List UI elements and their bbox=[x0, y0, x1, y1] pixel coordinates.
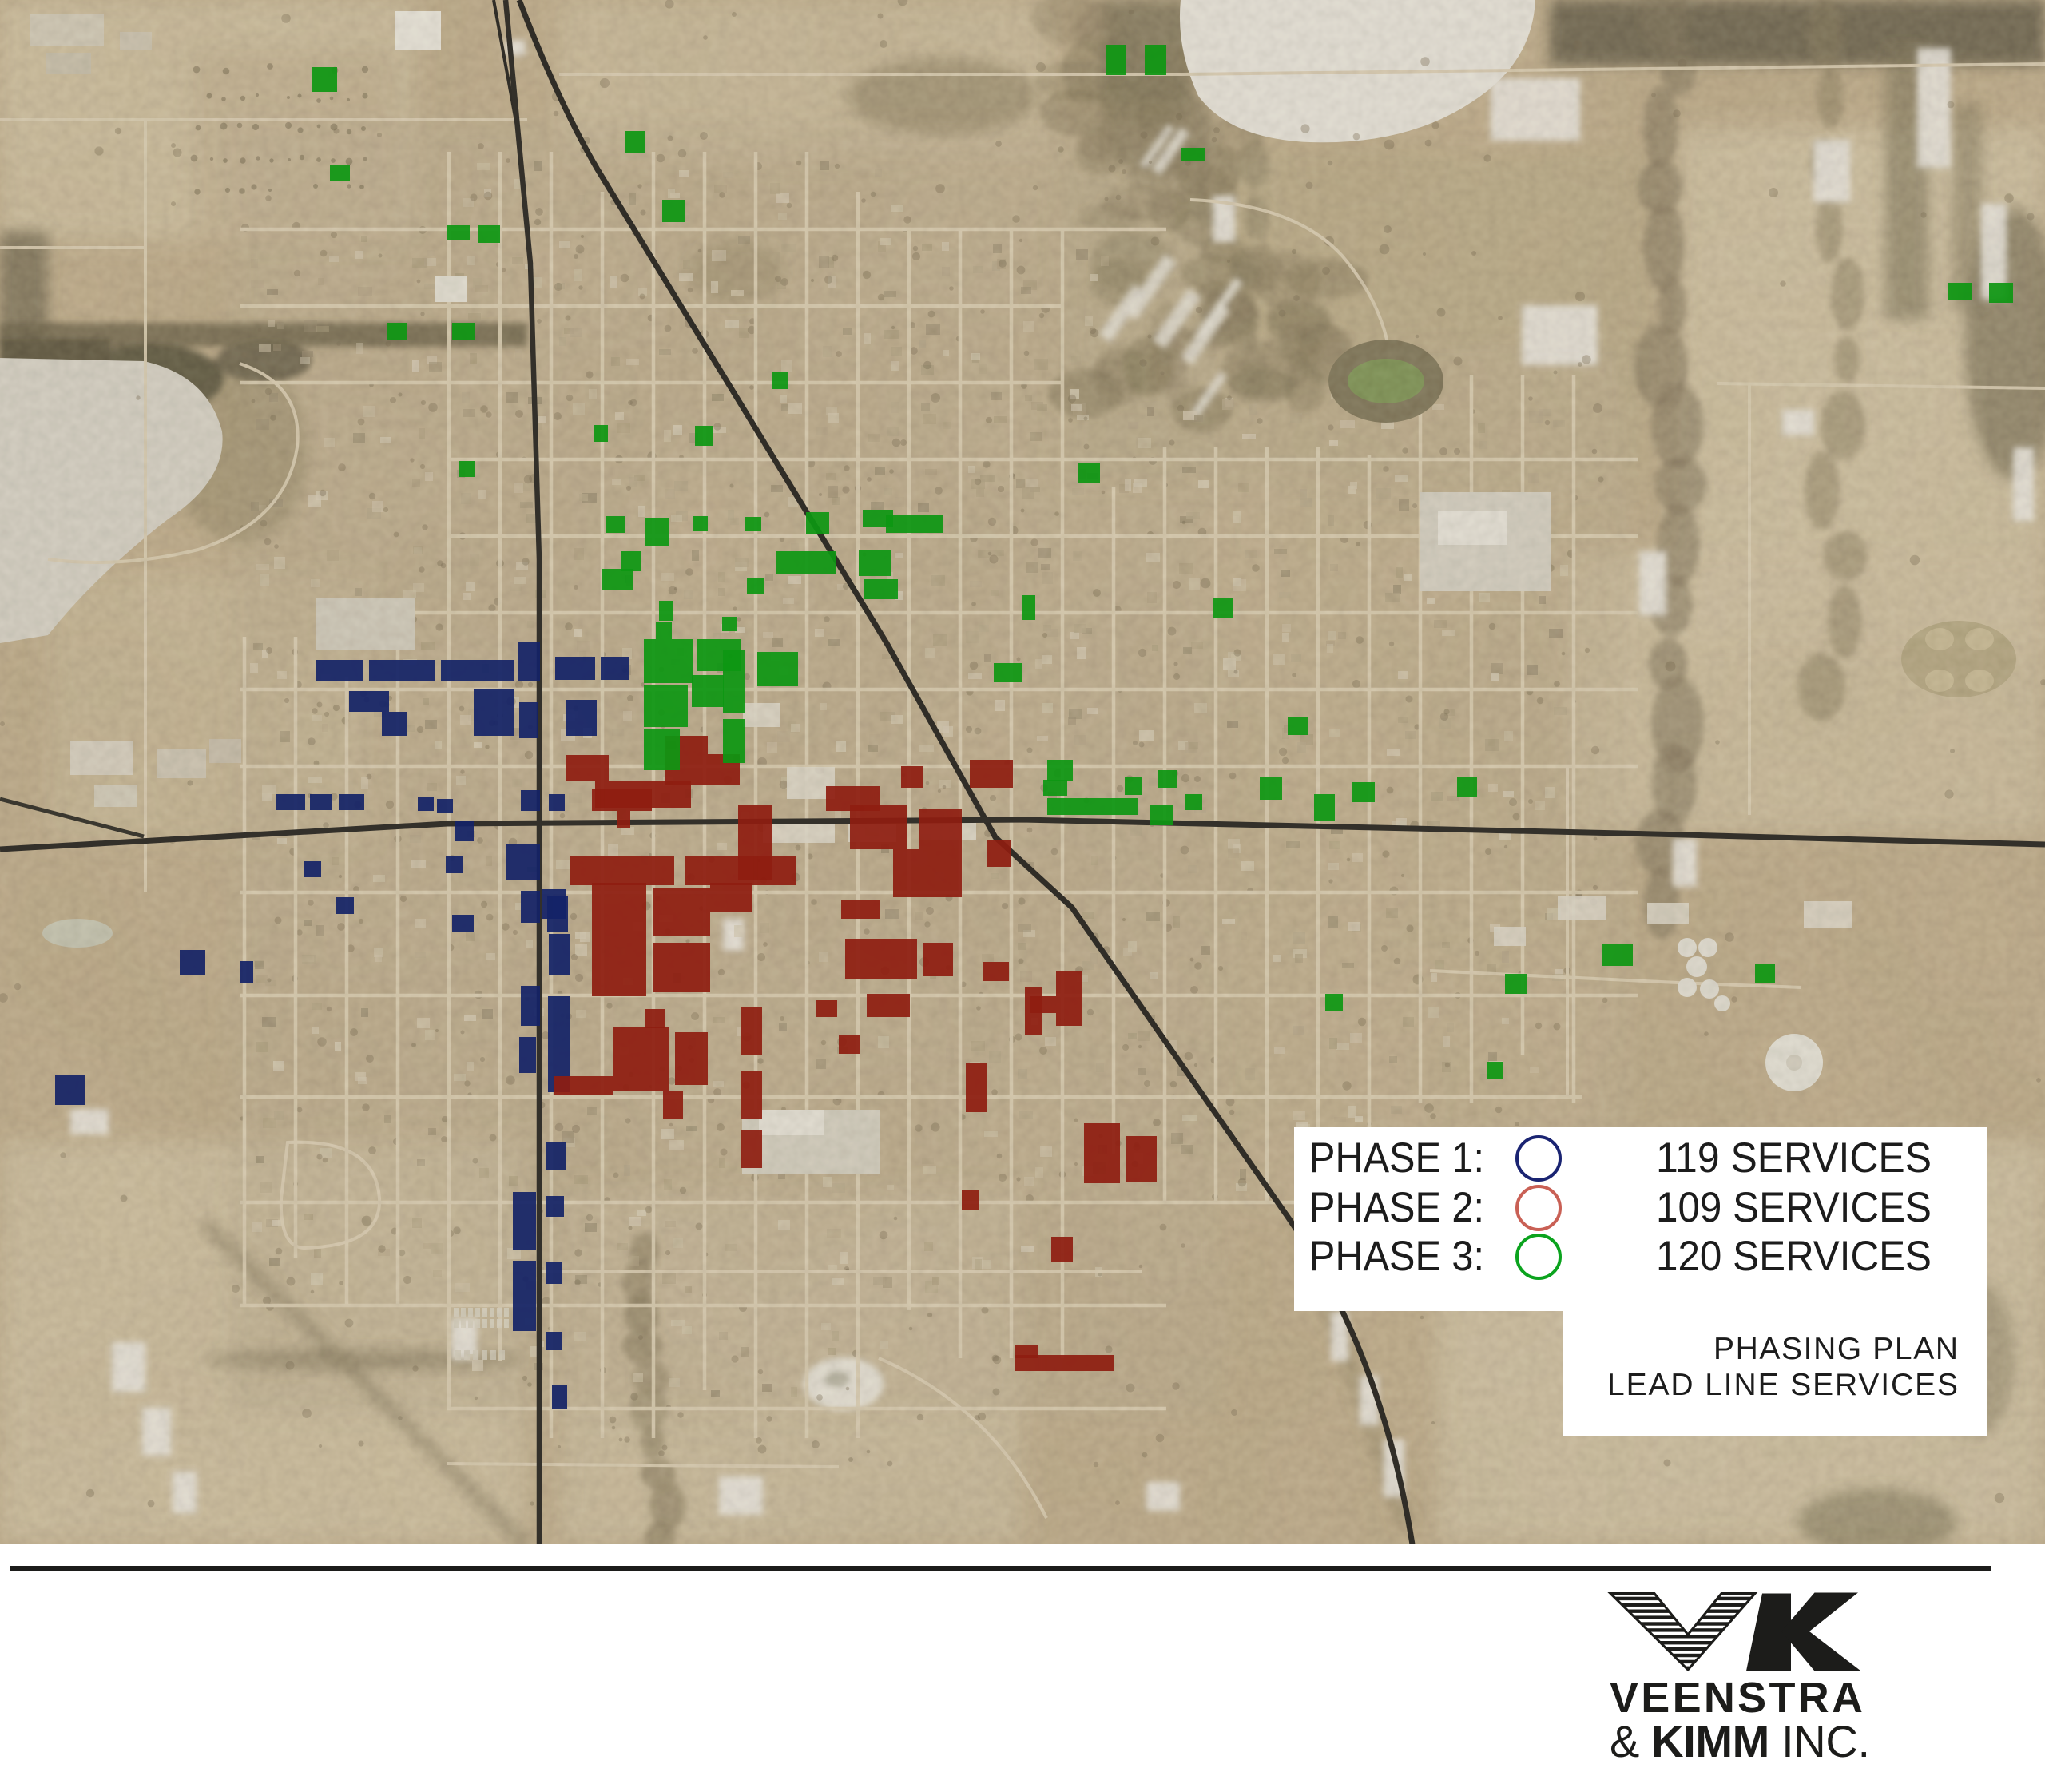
svg-text:LEAD LINE SERVICES: LEAD LINE SERVICES bbox=[1607, 1368, 1958, 1402]
svg-text:109 SERVICES: 109 SERVICES bbox=[1656, 1184, 1932, 1231]
svg-text:& KIMM INC.: & KIMM INC. bbox=[1610, 1716, 1870, 1766]
svg-text:PHASE 2:: PHASE 2: bbox=[1309, 1184, 1484, 1231]
svg-text:PHASING PLAN: PHASING PLAN bbox=[1713, 1332, 1958, 1366]
svg-text:120 SERVICES: 120 SERVICES bbox=[1656, 1233, 1932, 1280]
svg-text:119 SERVICES: 119 SERVICES bbox=[1656, 1134, 1932, 1182]
svg-text:PHASE 3:: PHASE 3: bbox=[1309, 1233, 1484, 1280]
svg-text:PHASE 1:: PHASE 1: bbox=[1309, 1134, 1484, 1182]
